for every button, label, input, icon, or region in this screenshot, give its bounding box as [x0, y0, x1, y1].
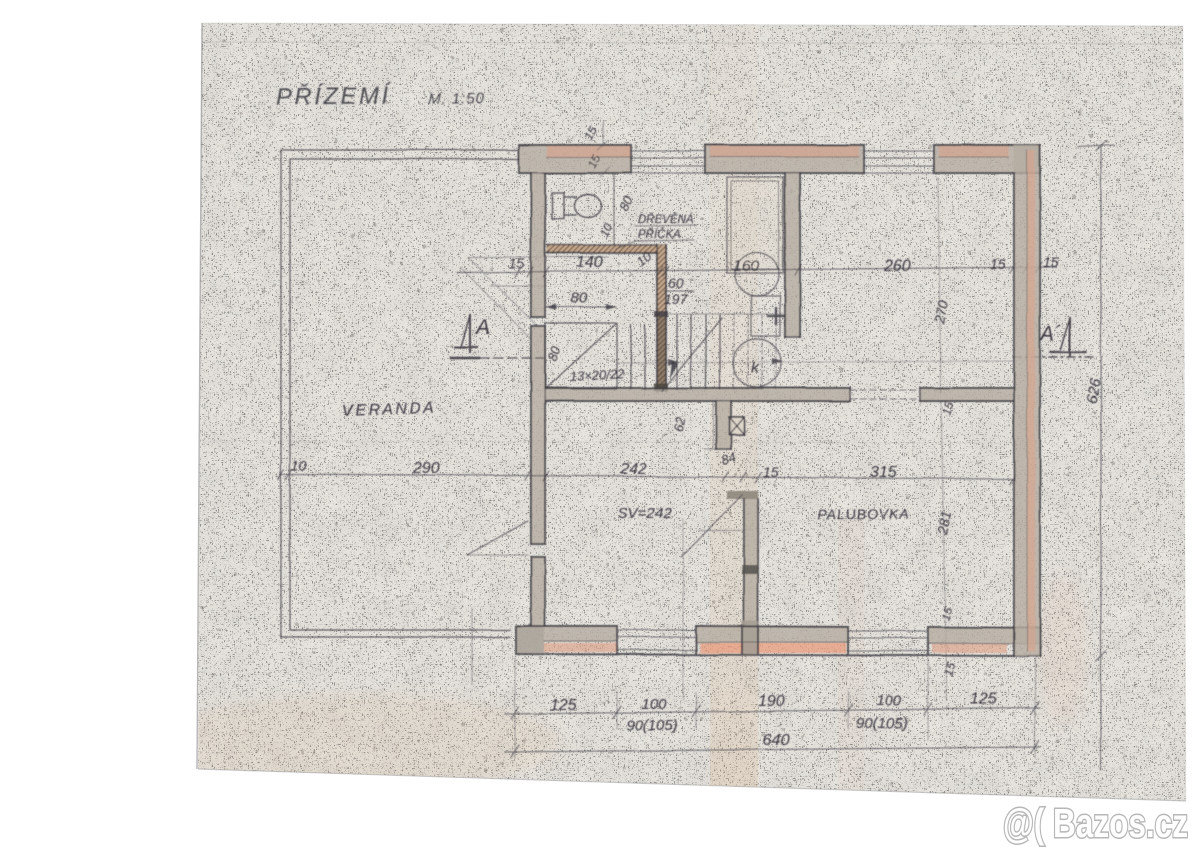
svg-text:100: 100 — [876, 692, 902, 709]
svg-text:90(105): 90(105) — [856, 715, 908, 732]
svg-text:125: 125 — [970, 691, 997, 708]
svg-text:260: 260 — [883, 258, 911, 275]
svg-text:PŘÍZEMÍ: PŘÍZEMÍ — [276, 82, 392, 111]
svg-text:290: 290 — [412, 460, 440, 477]
svg-text:SV=242: SV=242 — [618, 505, 672, 522]
svg-text:A: A — [474, 316, 490, 339]
svg-text:M. 1:50: M. 1:50 — [428, 90, 485, 108]
svg-text:15: 15 — [763, 464, 779, 480]
svg-text:10: 10 — [291, 457, 307, 473]
svg-text:PŘÍČKA: PŘÍČKA — [638, 228, 681, 241]
svg-text:242: 242 — [619, 461, 647, 478]
svg-text:140: 140 — [576, 254, 603, 271]
svg-text:13×20/22: 13×20/22 — [569, 366, 625, 384]
svg-text:125: 125 — [550, 697, 577, 714]
svg-text:15: 15 — [1043, 254, 1059, 270]
svg-text:DŘEVĚNÁ: DŘEVĚNÁ — [638, 213, 694, 226]
svg-text:80: 80 — [570, 290, 587, 307]
svg-text:640: 640 — [763, 732, 790, 749]
svg-text:160: 160 — [733, 258, 760, 275]
svg-text:15: 15 — [509, 255, 525, 271]
svg-text:197: 197 — [664, 291, 689, 307]
svg-text:60: 60 — [668, 275, 684, 291]
svg-text:315: 315 — [870, 464, 897, 481]
svg-text:90(105): 90(105) — [626, 717, 678, 734]
svg-text:PALUBOVKA: PALUBOVKA — [817, 505, 910, 523]
svg-text:190: 190 — [758, 693, 785, 710]
svg-text:100: 100 — [641, 696, 667, 713]
svg-text:VERANDA: VERANDA — [342, 400, 437, 420]
svg-text:A´: A´ — [1040, 323, 1061, 345]
svg-text:@( Bazos.cz: @( Bazos.cz — [1003, 800, 1188, 846]
svg-text:15: 15 — [990, 256, 1006, 272]
